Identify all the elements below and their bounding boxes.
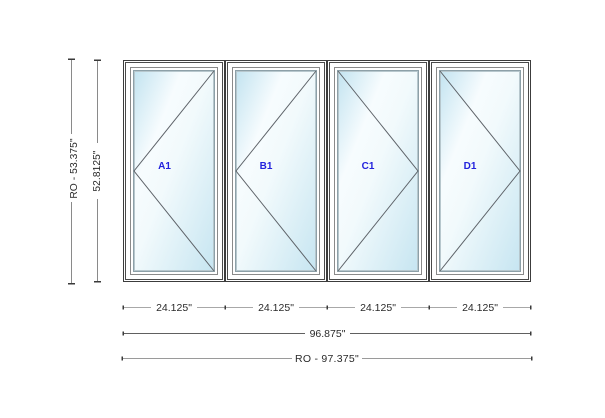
svg-text:24.125": 24.125" [156, 302, 192, 314]
svg-text:52.8125": 52.8125" [92, 150, 103, 192]
svg-text:24.125": 24.125" [360, 302, 396, 314]
svg-text:A1: A1 [158, 161, 171, 172]
svg-text:C1: C1 [362, 161, 375, 172]
svg-text:24.125": 24.125" [258, 302, 294, 314]
svg-text:B1: B1 [260, 161, 273, 172]
svg-text:RO - 53.375": RO - 53.375" [69, 138, 80, 199]
svg-text:RO - 97.375": RO - 97.375" [295, 353, 359, 365]
svg-text:96.875": 96.875" [310, 328, 346, 340]
svg-text:24.125": 24.125" [462, 302, 498, 314]
svg-text:D1: D1 [464, 161, 477, 172]
